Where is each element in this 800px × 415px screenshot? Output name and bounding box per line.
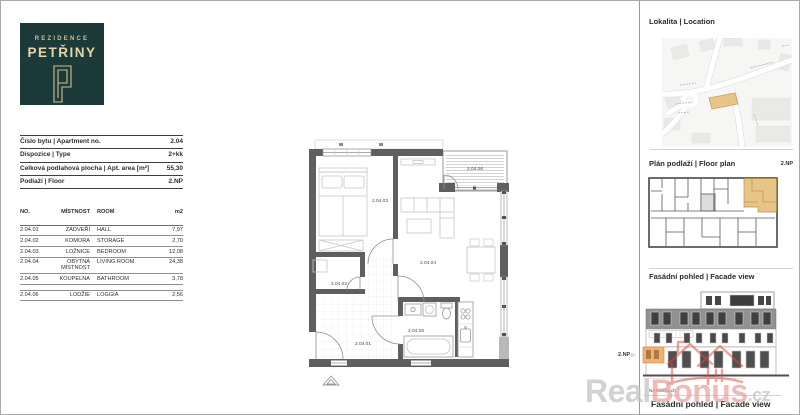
table-row: 2.04.02KOMORASTORAGE2,70 [20,236,183,247]
table-row-loggia: 2.04.06LODŽIELOGGIA2,56 [20,290,183,302]
table-row: 2.04.03LOŽNICEBEDROOM12,08 [20,247,183,258]
facade-top-floor [701,292,774,309]
top-window [323,149,371,156]
rezidence-petriny-logo: REZIDENCE PETŘINY [20,23,104,105]
header-mistnost: MÍSTNOST [52,210,97,216]
highlighted-unit [744,179,777,213]
upper-outline [315,140,443,149]
watermark-text: RealBonus.cz [585,375,770,407]
info-value: 2+kk [168,152,183,159]
label-storage: 2.04.02 [331,281,347,287]
watermark-bonus: Bonus [651,373,748,409]
building-floor-plan [648,176,778,249]
info-row: Číslo bytu | Apartment no.2.04 [20,135,183,148]
logo-brand-text: REZIDENCE [20,36,104,42]
floorplan-section-title: Plán podlaží | Floor plan [649,160,735,168]
facade-dark-band [646,309,776,329]
facade-floor-label: 2.NP ▷ [618,352,635,358]
logo-name-text: PETŘINY [20,45,104,60]
label-living: 2.04.04 [420,260,436,266]
logo-p-monogram-icon [47,64,77,104]
header-room: ROOM [97,210,157,216]
apartment-floor-plan: 2.04.03 2.04.06 2.04.04 2.04.02 2.04.01 … [301,139,546,389]
floorplan-floor-badge: 2.NP [758,161,793,167]
label-bedroom: 2.04.03 [372,198,388,204]
room-list-table: NO. MÍSTNOST ROOM m2 2.04.01ZÁDVEŘÍHALL7… [20,208,183,301]
table-row: 2.04.01ZÁDVEŘÍHALL7,97 [20,226,183,237]
location-map [662,38,792,147]
watermark-cz: .cz [748,385,771,405]
table-row: 2.04.05KOUPELNABATHROOM3,78 [20,274,183,285]
info-value: 2.04 [170,139,183,146]
label-hall: 2.04.01 [355,341,371,347]
north-arrow-icon [323,376,339,385]
info-value: 55,30 [167,166,183,173]
apartment-info-table: Číslo bytu | Apartment no.2.04 Dispozice… [20,135,183,189]
watermark-real: Real [585,373,651,409]
info-row: Podlaží | Floor2.NP [20,175,183,189]
info-label: Dispozice | Type [20,152,70,159]
hall-tiled-floor [316,297,393,359]
facade-section-title: Fasádní pohled | Facade view [649,273,754,281]
section-divider [649,268,793,269]
pointer-arrow-icon: ▷ [632,352,635,357]
section-divider [649,149,793,150]
location-section-title: Lokalita | Location [649,18,715,26]
info-label: Číslo bytu | Apartment no. [20,139,101,146]
info-label: Celková podlahová plocha | Apt. area [m²… [20,166,149,173]
sidebar-divider [639,1,640,415]
table-row: 2.04.04OBYTNÁ MÍSTNOSTLIVING ROOM24,38 [20,258,183,274]
kitchen-counter [458,302,473,357]
label-loggia: 2.04.06 [467,166,483,172]
label-bathroom: 2.04.05 [408,328,424,334]
info-value: 2.NP [169,179,183,186]
corridor-tiled-floor [363,257,393,297]
room-table-header: NO. MÍSTNOST ROOM m2 [20,208,183,226]
brochure-page: REZIDENCE PETŘINY Číslo bytu | Apartment… [0,0,800,415]
info-label: Podlaží | Floor [20,179,64,186]
header-no: NO. [20,210,52,216]
info-row: Celková podlahová plocha | Apt. area [m²… [20,162,183,175]
header-m2: m2 [157,210,183,216]
info-row: Dispozice | Type2+kk [20,148,183,161]
